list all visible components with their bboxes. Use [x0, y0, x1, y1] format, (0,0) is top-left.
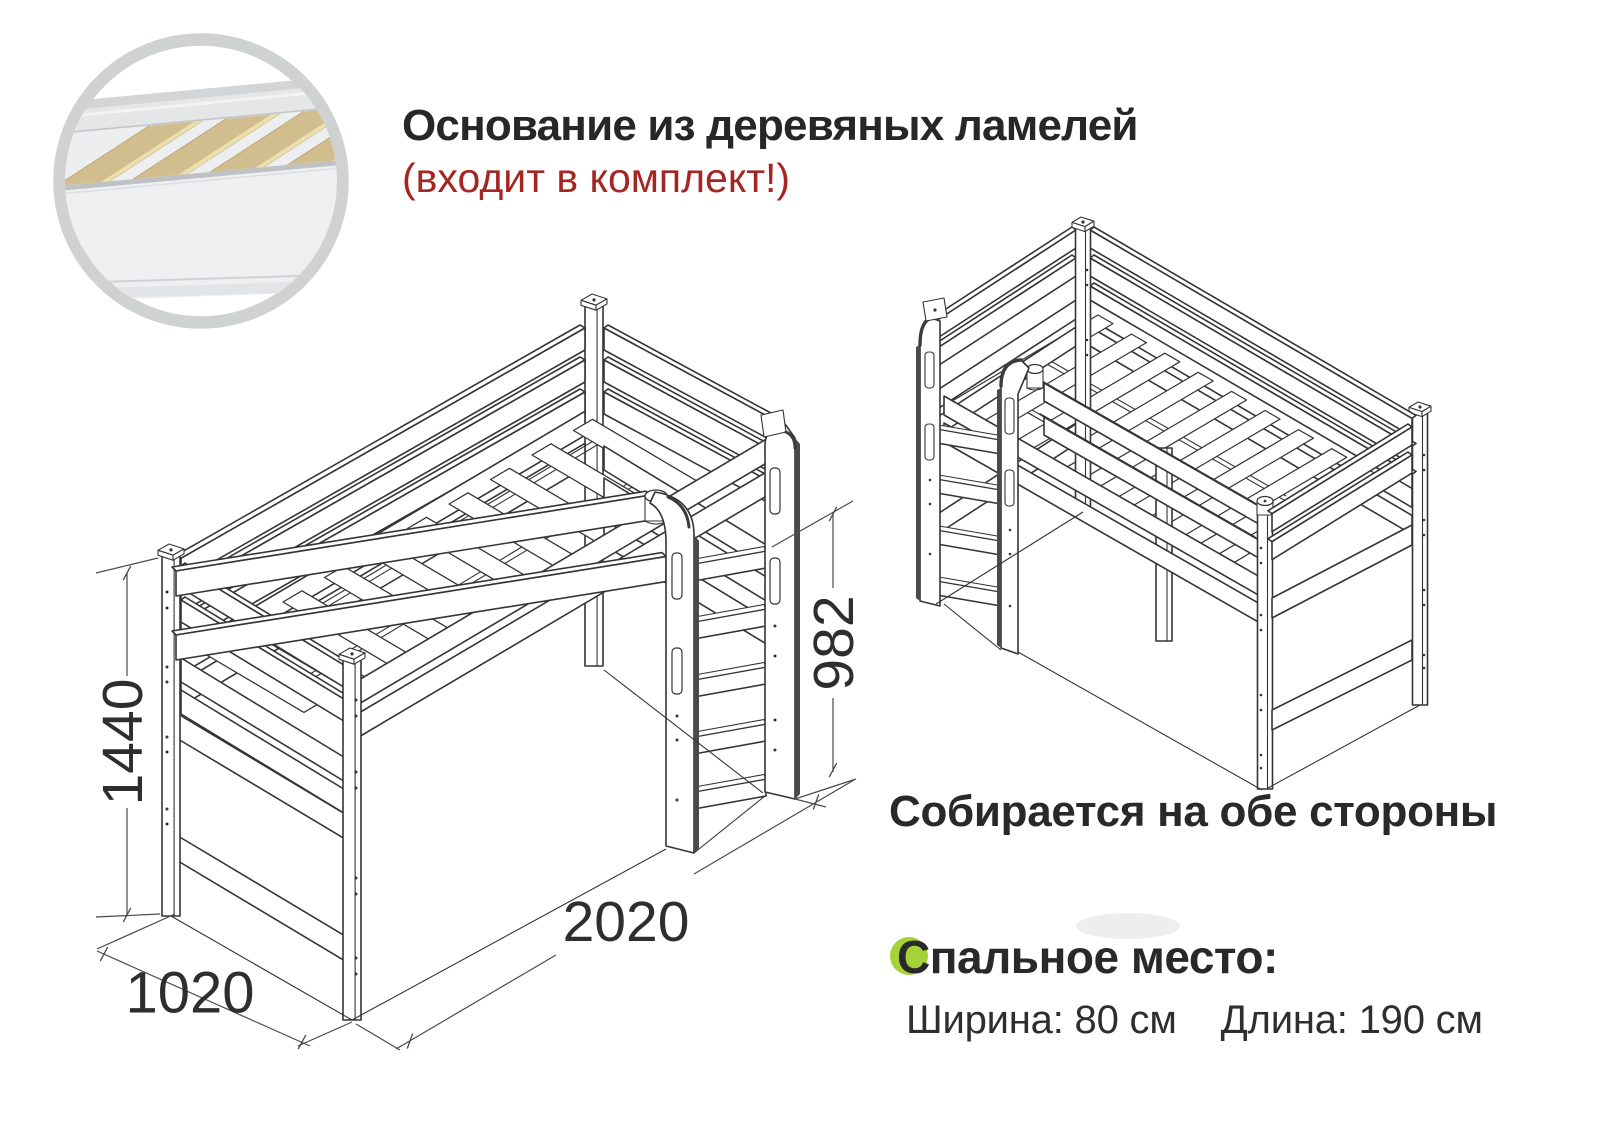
svg-text:2020: 2020 [563, 890, 690, 954]
svg-text:982: 982 [802, 595, 866, 690]
svg-text:1020: 1020 [125, 961, 254, 1026]
svg-text:1440: 1440 [91, 679, 155, 806]
